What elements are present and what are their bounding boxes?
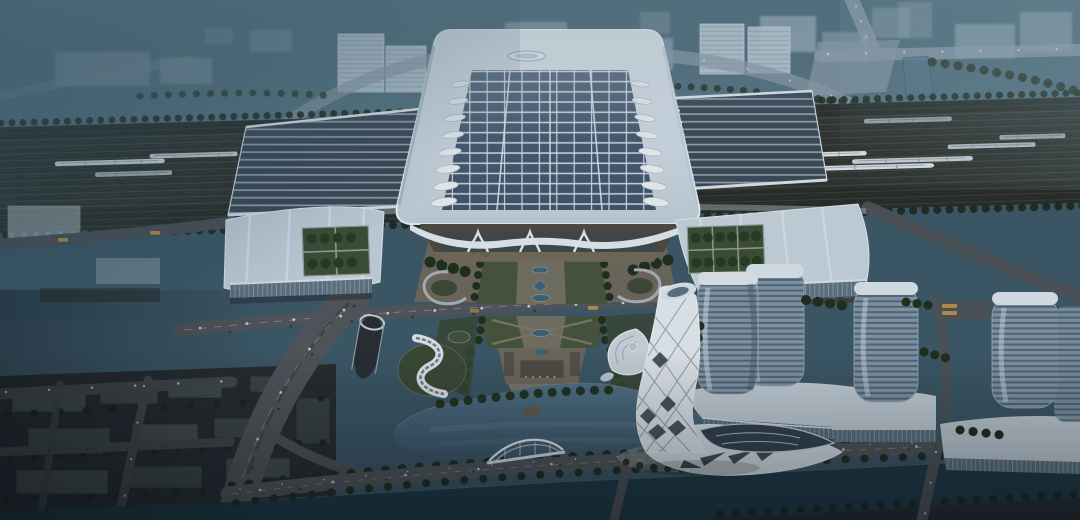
cool-color-cast bbox=[0, 0, 1080, 520]
architectural-rendering: Aerial dusk rendering of a high-speed ra… bbox=[0, 0, 1080, 520]
scene-canvas: Aerial dusk rendering of a high-speed ra… bbox=[0, 0, 1080, 520]
